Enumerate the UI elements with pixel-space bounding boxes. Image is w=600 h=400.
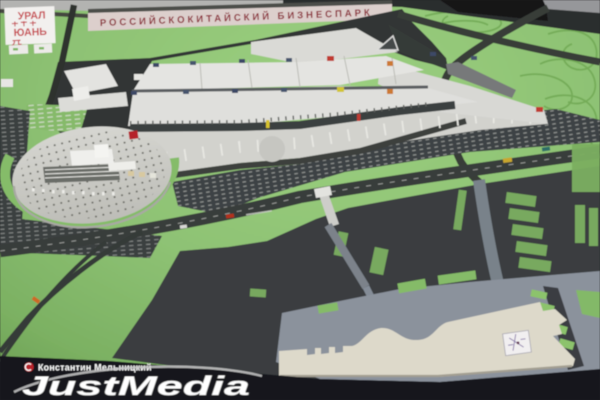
svg-text:УРАЛ: УРАЛ (18, 9, 46, 22)
svg-text:JustMedia: JustMedia (22, 371, 250, 400)
svg-text:ЮАНЬ: ЮАНЬ (13, 26, 47, 39)
